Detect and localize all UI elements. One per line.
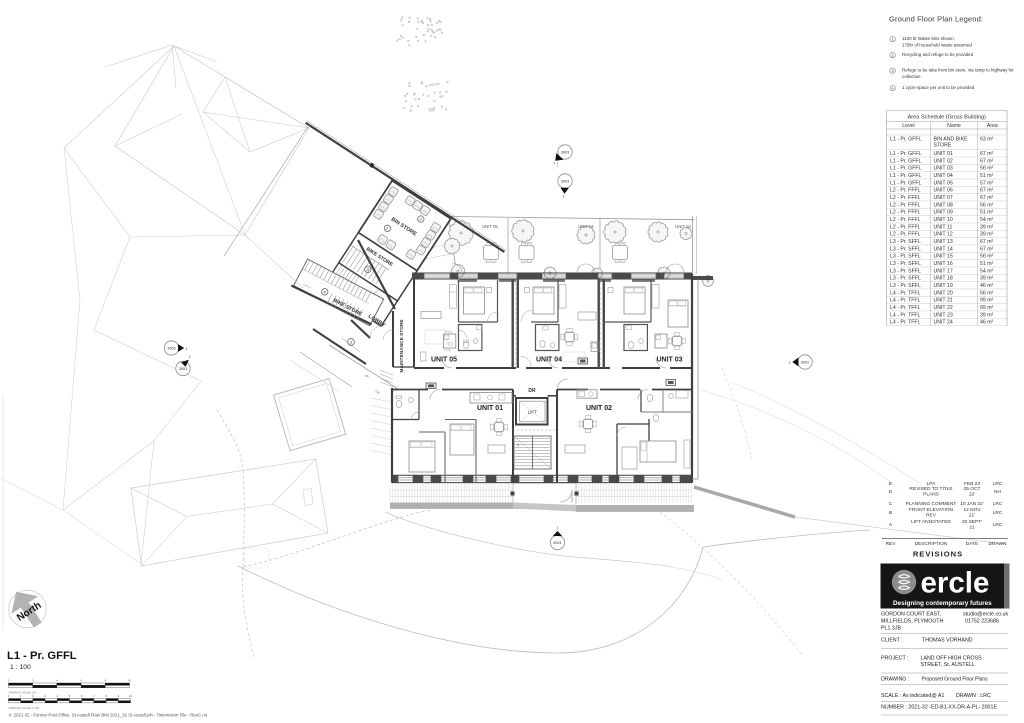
svg-text:UNIT 22: UNIT 22 [934,305,953,311]
svg-text:UNIT 15: UNIT 15 [934,254,953,260]
svg-text:UNIT 20: UNIT 20 [934,290,953,296]
svg-text:L3 - Pr. SFFL: L3 - Pr. SFFL [890,283,921,289]
svg-text:39 m²: 39 m² [980,276,994,282]
svg-text:3001: 3001 [179,367,187,371]
svg-text:UNIT 17: UNIT 17 [934,268,953,274]
svg-text:B: B [889,510,892,516]
svg-text:21: 21 [969,525,975,531]
svg-text:Designing contemporary futures: Designing contemporary futures [893,600,992,607]
svg-text:L3 - Pr. SFFL: L3 - Pr. SFFL [890,276,921,282]
svg-text:2: 2 [892,53,894,57]
svg-text:1: 1 [186,347,188,351]
svg-text:L1 - Pr. GFFL: L1 - Pr. GFFL [890,166,922,172]
svg-text:22': 22' [969,492,975,498]
svg-text:UNIT 04: UNIT 04 [536,357,562,364]
svg-text:Proposed Ground Floor Plans: Proposed Ground Floor Plans [922,677,989,683]
svg-text:MAINTENANCE STORE: MAINTENANCE STORE [399,319,405,373]
svg-text:UNIT 05: UNIT 05 [431,357,457,364]
svg-text:46 m²: 46 m² [980,283,994,289]
svg-text:54 m²: 54 m² [980,217,994,223]
svg-text:frd frzr: frd frzr [445,349,452,352]
svg-text:67 m²: 67 m² [980,158,994,164]
svg-text:L3 - Pr. SFFL: L3 - Pr. SFFL [890,261,921,267]
svg-text:3002: 3002 [801,361,809,365]
svg-text:LRC: LRC [993,522,1003,528]
svg-text:L2 - Pr. FFFL: L2 - Pr. FFFL [890,217,921,223]
svg-text:DESCRIPTION: DESCRIPTION [915,541,948,547]
svg-text:GRAPHIC SCALE 1:100: GRAPHIC SCALE 1:100 [9,706,40,710]
svg-text:39 m²: 39 m² [980,232,994,238]
svg-text:UNIT 10: UNIT 10 [934,217,953,223]
svg-text:57 m²: 57 m² [980,180,994,186]
svg-text:PLANNING COMMENT: PLANNING COMMENT [906,501,957,507]
svg-text:GRAPHIC SCALE 1:8: GRAPHIC SCALE 1:8 [9,691,37,695]
svg-text:67 m²: 67 m² [980,195,994,201]
svg-text:heat pum: heat pum [522,261,531,264]
svg-text:UNIT 14: UNIT 14 [934,246,953,252]
svg-text:UNIT 02: UNIT 02 [586,405,612,412]
svg-text:UNIT 03: UNIT 03 [657,357,683,364]
svg-text:FRONT ELEVATION: FRONT ELEVATION [909,507,954,513]
svg-text:1 : 100: 1 : 100 [10,664,31,671]
svg-text:UNIT 24: UNIT 24 [934,320,953,326]
svg-text:UNIT 23: UNIT 23 [934,312,953,318]
svg-text:UNIT 04: UNIT 04 [934,173,953,179]
svg-text:56 m²: 56 m² [980,166,994,172]
svg-text:69 m²: 69 m² [980,305,994,311]
svg-text:1100 ltr Waste bins shown.: 1100 ltr Waste bins shown. [902,36,955,41]
svg-text:3003: 3003 [561,151,569,155]
svg-text:heat pum: heat pum [486,261,495,264]
svg-text:REVISIONS: REVISIONS [913,550,963,559]
svg-text:L2 - Pr. FFFL: L2 - Pr. FFFL [890,195,921,201]
svg-text:20 SEPT': 20 SEPT' [962,519,982,525]
svg-text:PLANS: PLANS [923,492,939,498]
svg-text:51 m²: 51 m² [980,261,994,267]
svg-text:DATE: DATE [966,541,978,547]
svg-text:UP: UP [516,443,520,447]
svg-text:REV: REV [926,513,937,519]
svg-text:63 m²: 63 m² [980,137,994,143]
svg-text:LIFT ANNOTATED: LIFT ANNOTATED [911,519,951,525]
svg-text:L1 - Pr. GFFL: L1 - Pr. GFFL [890,180,922,186]
svg-text:3001: 3001 [553,541,561,545]
svg-text:STORE: STORE [934,143,952,149]
svg-text:studio@ercle.co.uk: studio@ercle.co.uk [963,612,1008,618]
svg-text:99 m²: 99 m² [980,298,994,304]
svg-text:01752 223686: 01752 223686 [965,619,999,625]
svg-text:3002: 3002 [167,347,175,351]
svg-text:NUMBER : 2021-32 -ED-B1-XX-DR: NUMBER : 2021-32 -ED-B1-XX-DR-A-PL- 2001… [881,705,997,711]
svg-text:DRAWING :: DRAWING : [881,677,909,683]
svg-text:UNIT 05: UNIT 05 [934,180,953,186]
svg-text:Level: Level [902,123,914,129]
svg-text:PROJECT :: PROJECT : [881,656,909,662]
svg-text:D: D [889,489,893,495]
svg-text:L1 - Pr. GFFL: L1 - Pr. GFFL [890,137,922,143]
svg-text:Ground Floor Plan Legend:: Ground Floor Plan Legend: [889,15,983,24]
svg-text:25 OCT: 25 OCT [964,486,981,492]
svg-text:2: 2 [789,361,791,365]
svg-text:3: 3 [892,69,894,73]
svg-text:UNIT 16: UNIT 16 [934,261,953,267]
svg-text:wtr htg: wtr htg [445,331,453,334]
svg-text:56 m²: 56 m² [980,202,994,208]
svg-text:DRAWN : LRC: DRAWN : LRC [956,693,991,699]
svg-text:DR: DR [528,388,536,394]
svg-text:CLIENT :: CLIENT : [881,638,903,644]
svg-text:DRAWN: DRAWN [989,541,1007,547]
svg-text:1: 1 [892,37,894,41]
svg-text:UNIT 06: UNIT 06 [934,188,953,194]
svg-text:UNIT 03: UNIT 03 [934,166,953,172]
svg-text:L4 - Pr. TFFL: L4 - Pr. TFFL [890,298,921,304]
svg-text:L3 - Pr. SFFL: L3 - Pr. SFFL [890,239,921,245]
svg-text:collection: collection [902,74,921,79]
svg-text:Name: Name [947,123,961,129]
svg-text:L4 - Pr. TFFL: L4 - Pr. TFFL [890,312,921,318]
svg-text:10 JAN 22': 10 JAN 22' [960,501,983,507]
svg-text:MILLFIELDS, PLYMOUTH: MILLFIELDS, PLYMOUTH [881,619,943,625]
svg-text:SCALE : As indicated@ A1: SCALE : As indicated@ A1 [881,693,944,699]
svg-text:56 m²: 56 m² [980,290,994,296]
svg-text:PL1 3JB: PL1 3JB [881,626,901,632]
svg-text:L2 - Pr. FFFL: L2 - Pr. FFFL [890,202,921,208]
svg-text:L2 - Pr. FFFL: L2 - Pr. FFFL [890,232,921,238]
svg-text:46 m²: 46 m² [980,320,994,326]
svg-text:67 m²: 67 m² [980,188,994,194]
svg-text:L4 - Pr. TFFL: L4 - Pr. TFFL [890,320,921,326]
svg-text:C: C [889,501,893,507]
svg-text:STREET, St. AUSTELL: STREET, St. AUSTELL [921,662,976,668]
svg-text:UNIT 07: UNIT 07 [934,195,953,201]
svg-text:UNIT 13: UNIT 13 [934,239,953,245]
svg-text:NH: NH [994,489,1001,495]
svg-text:UNIT 09: UNIT 09 [934,210,953,216]
svg-text:67 m²: 67 m² [980,246,994,252]
svg-text:L1 - Pr. GFFL: L1 - Pr. GFFL [890,158,922,164]
svg-text:L4 - Pr. TFFL: L4 - Pr. TFFL [890,305,921,311]
svg-text:21': 21' [969,513,975,519]
svg-text:3003: 3003 [561,180,569,184]
svg-text:L1 - Pr. GFFL: L1 - Pr. GFFL [890,151,922,157]
svg-text:L2 - Pr. FFFL: L2 - Pr. FFFL [890,210,921,216]
svg-text:LRC: LRC [993,510,1003,516]
svg-text:1: 1 [557,527,559,531]
svg-text:Refuge to be take from bin sto: Refuge to be take from bin store, via ra… [902,67,1014,72]
svg-text:GORDON COURT EAST,: GORDON COURT EAST, [881,612,941,618]
svg-text:175ltr of household waste assu: 175ltr of household waste assumed [902,42,972,47]
svg-text:2: 2 [563,195,565,199]
svg-text:39 m²: 39 m² [980,224,994,230]
svg-text:UNIT 05: UNIT 05 [482,224,498,229]
svg-text:UNIT 01: UNIT 01 [934,151,953,157]
svg-text:L2 - Pr. FFFL: L2 - Pr. FFFL [890,224,921,230]
svg-text:39 m²: 39 m² [980,312,994,318]
svg-text:LRC: LRC [993,481,1003,487]
svg-text:67 m²: 67 m² [980,151,994,157]
svg-text:2: 2 [189,355,191,359]
svg-text:UNIT 04: UNIT 04 [578,224,594,229]
svg-text:51 m²: 51 m² [980,210,994,216]
svg-text:Area Schedule (Gross Building): Area Schedule (Gross Building) [908,114,986,120]
svg-text:UNIT 01: UNIT 01 [477,405,503,412]
svg-text:L1 - Pr. GFFL: L1 - Pr. GFFL [890,173,922,179]
svg-text:L4 - Pr. TFFL: L4 - Pr. TFFL [890,290,921,296]
svg-text:L2 - Pr. FFFL: L2 - Pr. FFFL [890,188,921,194]
svg-text:12 NOV: 12 NOV [963,507,981,513]
svg-text:L3 - Pr. SFFL: L3 - Pr. SFFL [890,246,921,252]
svg-text:56 m²: 56 m² [980,254,994,260]
svg-text:L1 - Pr. GFFL: L1 - Pr. GFFL [7,650,77,662]
svg-text:LRC: LRC [993,501,1003,507]
svg-text:51 m²: 51 m² [980,173,994,179]
svg-text:Recycling and refuge to be pro: Recycling and refuge to be provided [902,52,974,57]
svg-text:ercle: ercle [921,567,990,600]
svg-text:E: E [889,481,892,487]
svg-text:1: 1 [553,161,555,165]
svg-text:LAND OFF HIGH CROSS: LAND OFF HIGH CROSS [921,656,983,662]
svg-text:REVISED TO TITLE: REVISED TO TITLE [909,486,952,492]
svg-text:REV: REV [886,541,897,547]
svg-text:UNIT 18: UNIT 18 [934,276,953,282]
svg-text:UNIT 11: UNIT 11 [934,224,953,230]
svg-text:4: 4 [892,86,894,90]
svg-text:LIFT: LIFT [528,410,538,415]
svg-text:L3 - Pr. SFFL: L3 - Pr. SFFL [890,254,921,260]
svg-text:54 m²: 54 m² [980,268,994,274]
svg-text:UNIT 12: UNIT 12 [934,232,953,238]
svg-text:UNIT 21: UNIT 21 [934,298,953,304]
svg-text:67 m²: 67 m² [980,239,994,245]
svg-text:X: 2021-32 - Former Post Offic: X: 2021-32 - Former Post Office, St Aust… [9,713,208,718]
svg-text:BIN AND BIKE: BIN AND BIKE [934,137,969,143]
svg-text:UNIT 08: UNIT 08 [934,202,953,208]
svg-text:Area: Area [987,123,998,129]
svg-text:UNIT 02: UNIT 02 [934,158,953,164]
svg-text:L3 - Pr. SFFL: L3 - Pr. SFFL [890,268,921,274]
svg-text:heat pum: heat pum [615,261,624,264]
svg-text:1 cycle space per unit to be p: 1 cycle space per unit to be provided [902,85,975,90]
svg-text:UNIT 19: UNIT 19 [934,283,953,289]
svg-text:THOMAS VORHAND: THOMAS VORHAND [922,638,973,644]
svg-text:UNIT 03: UNIT 03 [675,224,691,229]
